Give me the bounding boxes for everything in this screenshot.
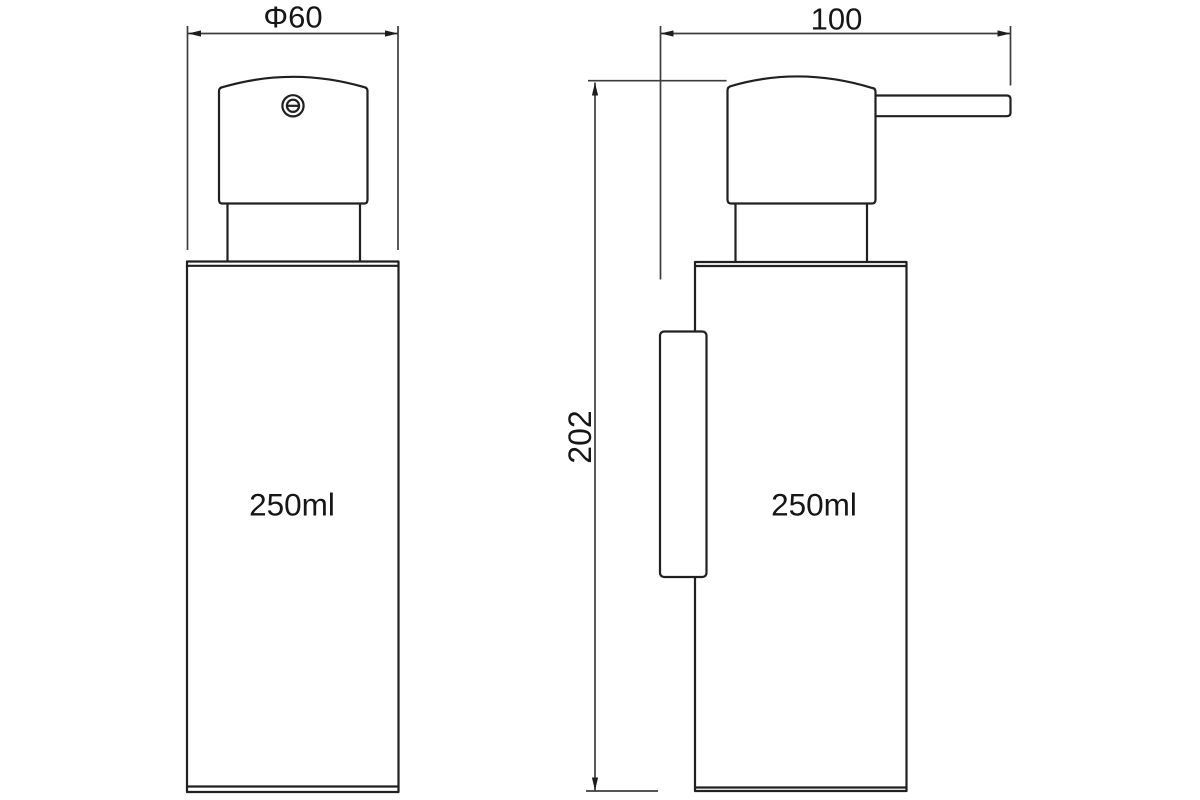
svg-text:Φ60: Φ60	[263, 0, 322, 35]
svg-text:100: 100	[811, 2, 863, 37]
svg-text:250ml: 250ml	[249, 487, 335, 523]
svg-text:202: 202	[562, 410, 598, 463]
svg-text:250ml: 250ml	[771, 487, 857, 523]
